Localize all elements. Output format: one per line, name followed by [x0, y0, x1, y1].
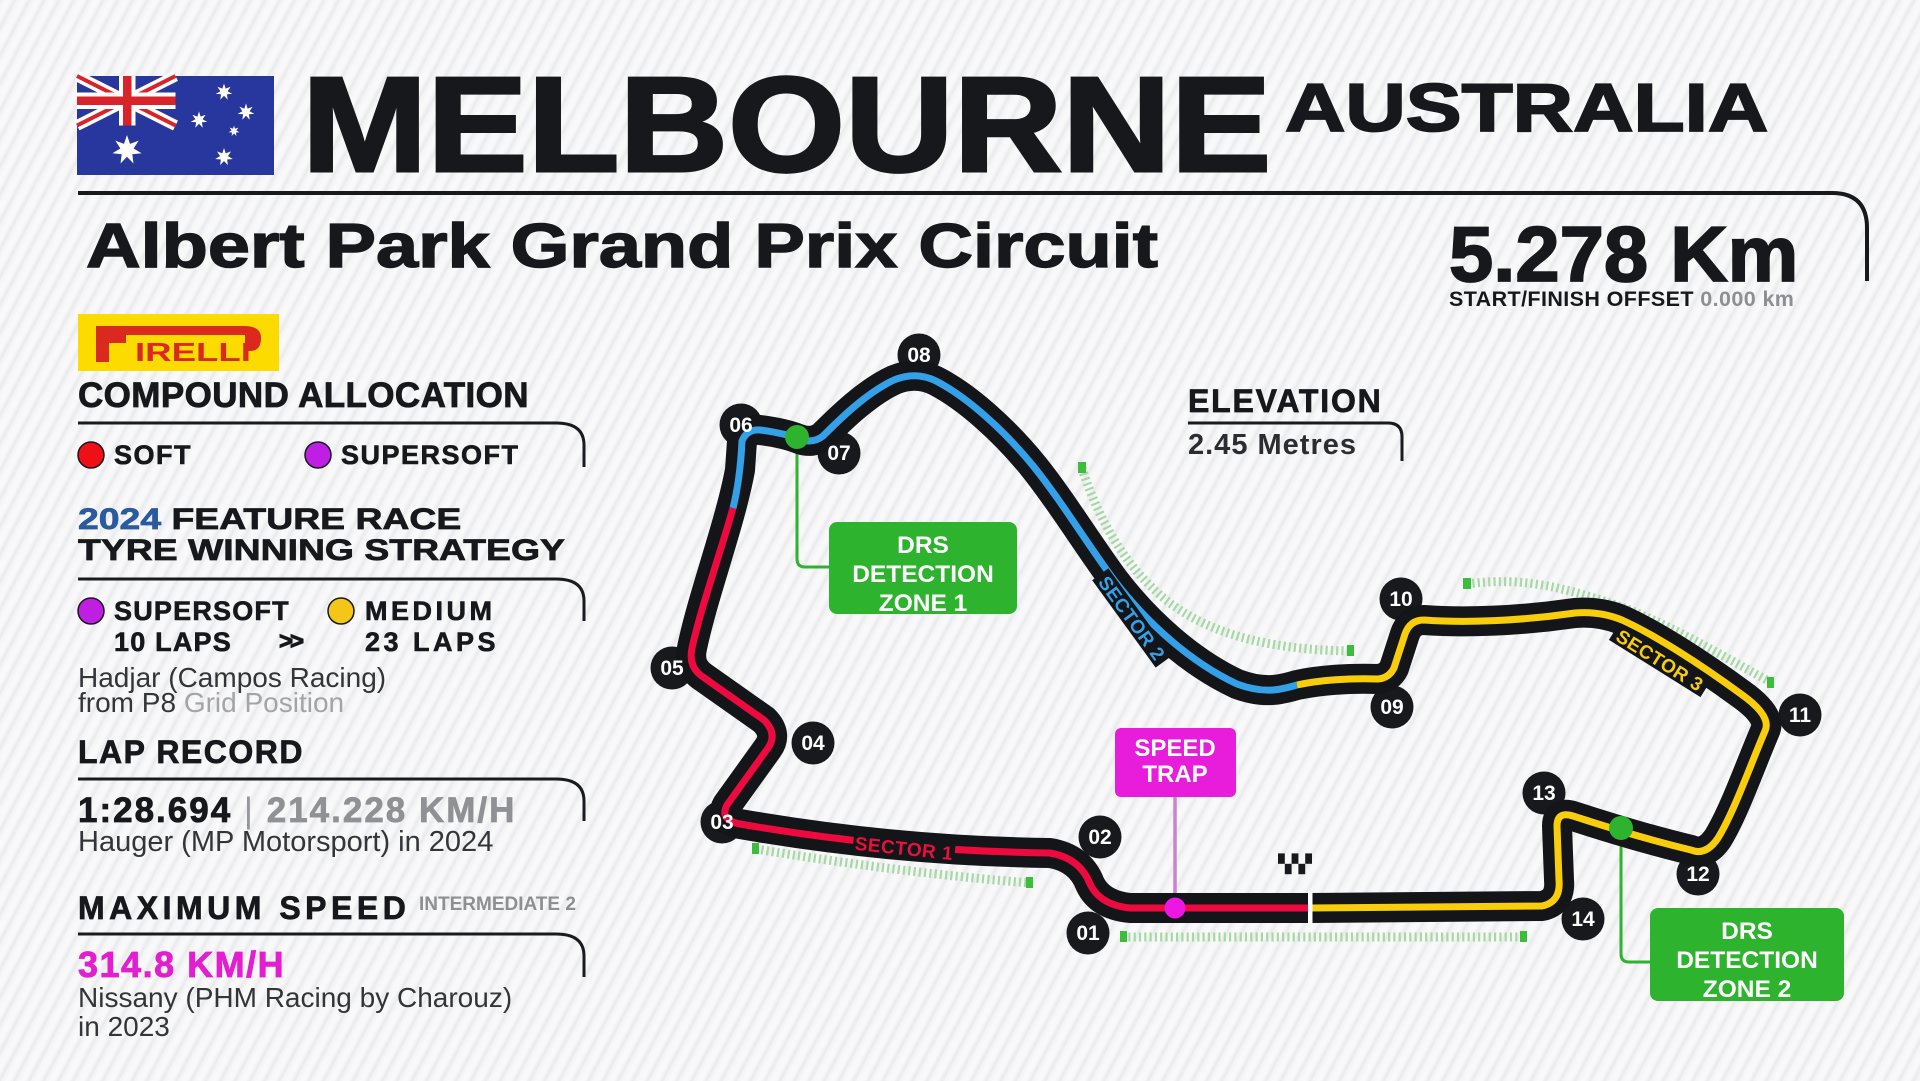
svg-text:06: 06: [729, 414, 752, 437]
svg-text:10: 10: [1389, 588, 1412, 611]
svg-text:05: 05: [660, 657, 684, 680]
svg-text:04: 04: [801, 732, 825, 755]
svg-text:ZONE 2: ZONE 2: [1703, 976, 1792, 1003]
svg-text:13: 13: [1532, 782, 1555, 805]
svg-text:09: 09: [1380, 696, 1403, 719]
svg-text:TRAP: TRAP: [1142, 761, 1207, 788]
svg-text:DETECTION: DETECTION: [1676, 947, 1818, 974]
svg-text:07: 07: [827, 442, 850, 465]
svg-text:02: 02: [1088, 826, 1111, 849]
svg-text:14: 14: [1571, 908, 1595, 931]
svg-text:12: 12: [1686, 863, 1709, 886]
svg-text:08: 08: [907, 344, 931, 367]
svg-text:03: 03: [710, 811, 733, 834]
svg-text:DETECTION: DETECTION: [852, 561, 994, 588]
svg-text:01: 01: [1076, 922, 1100, 945]
svg-text:SPEED: SPEED: [1134, 735, 1215, 762]
svg-text:DRS: DRS: [1721, 918, 1773, 945]
svg-text:DRS: DRS: [897, 532, 949, 559]
svg-text:ZONE 1: ZONE 1: [879, 590, 968, 617]
svg-text:11: 11: [1789, 704, 1812, 727]
